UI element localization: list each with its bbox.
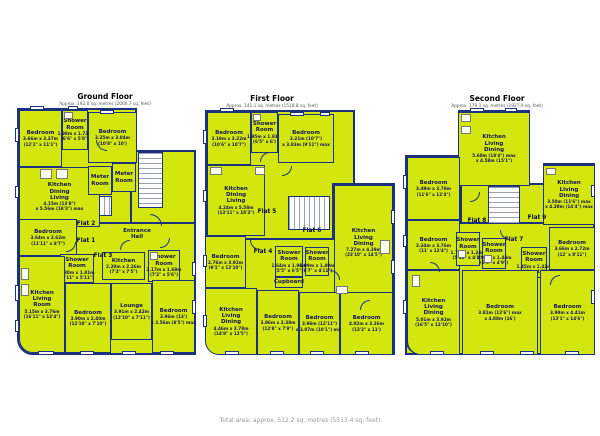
floor-subtitle-text: Approx. 141.1 sq. metres (1518.8 sq. fee… (192, 104, 352, 109)
window-mark (15, 285, 19, 301)
window-mark (403, 175, 407, 189)
stairs (288, 196, 330, 230)
floor-subtitle-text: Approx. 192.0 sq. metres (2066.7 sq. fee… (25, 102, 185, 107)
room-dimensions: (16'11" x 12'4") (24, 314, 61, 319)
flat-label: Flat 8 (468, 218, 487, 224)
room-dimensions: (5'5" x 6'5") (275, 268, 303, 273)
room-name: Kitchen Living Room (30, 290, 54, 309)
fixture-mark (484, 255, 492, 263)
room-lounge: Lounge3.91m x 2.42m(12'10" x 7'11") (111, 283, 152, 340)
room-name: Kitchen Living Dining (422, 298, 446, 317)
fixture-mark (461, 114, 471, 122)
room-name: Shower Room (253, 121, 276, 134)
room-dimensions: (9'1" x 12'10") (209, 265, 243, 270)
room-dimensions: (6'5" x 6') (253, 139, 276, 144)
room-name: Shower Room (63, 118, 86, 131)
window-mark (565, 351, 579, 355)
room-name: Kitchen Dining Living (48, 182, 72, 201)
window-mark (403, 300, 407, 314)
flat-label: Flat 4 (254, 249, 273, 255)
flat-label: Flat 9 (528, 215, 547, 221)
room-dimensions: (13'2" x 11') (352, 327, 381, 332)
window-mark (290, 112, 304, 116)
total-area-note: Total area: approx. 512.2 sq. metres (55… (0, 417, 600, 424)
room-bedroom: Bedroom3.49m x 3.78m(11'6" x 12'4") (407, 157, 460, 220)
room-name: Shower Room (305, 250, 328, 263)
room-name: Shower Room (65, 257, 88, 270)
window-mark (192, 300, 196, 314)
room-name: Kitchen Dining Living (224, 186, 248, 205)
room-meter-room: Meter Room (112, 163, 136, 192)
room-shower-room: Shower Room2.05m x 1.44m(6'9" x 4'9") (482, 238, 506, 269)
room-bedroom: Bedroom3.96m (12'11")x 3.07m (10'1") max (299, 292, 340, 355)
room-dimensions: x 4.38m (14'4") max (545, 204, 593, 209)
room-shower-room: Shower Room1.79m x 1.24m(5'10" x 4'1") (456, 232, 480, 266)
window-mark (391, 260, 395, 274)
room-name: Shower Room (522, 251, 545, 264)
window-mark (38, 351, 54, 355)
window-mark (225, 351, 239, 355)
window-mark (310, 351, 324, 355)
room-dimensions: (11'6" x 12'4") (417, 192, 451, 197)
room-name: Cupboard (274, 279, 304, 285)
fixture-mark (380, 240, 390, 254)
stairs (138, 152, 163, 208)
room-kitchen-living-dining: Kitchen Living Dining5.60m (18'4") maxx … (458, 112, 530, 186)
room-kitchen-dining-living: Kitchen Dining Living4.24m x 5.58m(13'11… (207, 165, 265, 236)
room-dimensions: (7'3" x 7'5") (109, 269, 137, 274)
room-dimensions: (5'11" x 5'11") (60, 275, 94, 280)
fixture-mark (412, 275, 420, 287)
window-mark (15, 320, 19, 332)
room-shower-room: Shower Room1.80m x 1.81m(5'11" x 5'11") (60, 254, 94, 283)
room-shower-room: Shower Room1.64m x 1.96m(5'5" x 6'5") (275, 246, 303, 277)
room-dimensions: (12'1" x 11'1") (24, 142, 58, 147)
room-name: Kitchen Living Dining (352, 228, 376, 247)
room-name: Entrance Hall (123, 228, 151, 241)
flat-label: Flat 2 (77, 221, 96, 227)
fixture-mark (21, 284, 29, 296)
room-name: Shower Room (482, 242, 505, 255)
window-mark (15, 186, 19, 198)
flat-label: Flat 3 (94, 253, 113, 259)
room-dimensions: (11' x 12'4") (419, 248, 448, 253)
room-dimensions: x 5.56m (18'3") max (36, 206, 84, 211)
room-dimensions: x 4.88m (16') (484, 316, 515, 321)
room-dimensions: (12'10" x 7'10") (70, 321, 107, 326)
room-dimensions: (13'1" x 14'6") (551, 316, 585, 321)
window-mark (203, 255, 207, 267)
room-cupboard: Cupboard (275, 277, 303, 288)
room-shower-room: Shower Room1.99m x 1.49m(6'7" x 4'11") (305, 247, 329, 276)
fixture-mark (458, 250, 466, 258)
floor-title-text: First Floor (192, 94, 352, 103)
flat-label: Flat 1 (77, 238, 96, 244)
room-dimensions: (12'10" x 7'11") (113, 315, 150, 320)
room-bedroom: Bedroom3.86m x 2.38m(12'8" x 7'9") (257, 290, 299, 355)
room-name: Shower Room (456, 237, 479, 250)
fixture-mark (336, 286, 348, 294)
room-dimensions: x 2.56m (8'5") max (151, 320, 196, 325)
room-name: Meter Room (115, 171, 133, 184)
window-mark (80, 351, 94, 355)
flat-label: Flat 5 (258, 209, 277, 215)
room-name: Meter Room (91, 174, 109, 187)
fixture-mark (461, 126, 471, 134)
room-bedroom: Bedroom3.90m x 2.40m(12'10" x 7'10") (65, 283, 111, 353)
room-name: Shower Room (277, 250, 300, 263)
room-dimensions: (14'8" x 12'5") (214, 331, 248, 336)
window-mark (391, 210, 395, 224)
floor-title: Second FloorApprox. 179.1 sq. metres (19… (417, 94, 577, 109)
room-bedroom: Bedroom3.25m x 3.04m(10'8" x 10') (88, 112, 137, 163)
window-mark (270, 351, 284, 355)
room-bedroom: Bedroom3.96m (13')x 2.56m (8'5") max (152, 280, 195, 353)
window-mark (320, 112, 330, 116)
floorplan-canvas: Total area: approx. 512.2 sq. metres (55… (0, 0, 600, 436)
floor-title: First FloorApprox. 141.1 sq. metres (151… (192, 94, 352, 109)
room-dimensions: (12'8" x 7'9") (263, 326, 294, 331)
window-mark (591, 185, 595, 197)
room-dimensions: (10'6" x 10'7") (212, 142, 246, 147)
fixture-mark (64, 112, 73, 119)
room-dimensions: (6'6" x 5'8") (61, 136, 89, 141)
room-dimensions: (12' x 8'11") (558, 252, 587, 257)
window-mark (403, 235, 407, 247)
window-mark (15, 128, 19, 142)
window-mark (192, 262, 196, 276)
window-mark (203, 315, 207, 327)
window-mark (160, 351, 174, 355)
window-mark (430, 351, 444, 355)
floor-title-text: Second Floor (417, 94, 577, 103)
fixture-mark (150, 252, 158, 260)
floor-title-text: Ground Floor (25, 92, 185, 101)
window-mark (100, 110, 114, 114)
fixture-mark (40, 169, 52, 179)
fixture-mark (56, 169, 68, 179)
window-mark (203, 190, 207, 202)
fixture-mark (21, 268, 29, 280)
room-dimensions: x 3.03m (9'11") max (282, 142, 330, 147)
room-meter-room: Meter Room (88, 166, 112, 195)
flat-label: Flat 7 (505, 237, 524, 243)
window-mark (520, 351, 534, 355)
room-bedroom: Bedroom3.99m x 4.41m(13'1" x 14'6") (540, 270, 595, 355)
window-mark (480, 351, 494, 355)
room-name: Kitchen Living Dining (557, 180, 581, 199)
fixture-mark (546, 168, 556, 175)
floor-title: Ground FloorApprox. 192.0 sq. metres (20… (25, 92, 185, 107)
fixture-mark (253, 114, 261, 121)
room-bedroom: Bedroom3.66m x 2.72m(12' x 8'11") (549, 227, 595, 270)
room-name: Kitchen Living Dining (219, 307, 243, 326)
room-kitchen-living-dining: Kitchen Living Dining4.46m x 3.78m(14'8"… (205, 288, 257, 355)
room-bedroom: Bedroom3.66m x 3.37m(12'1" x 11'1") (19, 110, 62, 167)
room-bedroom: Bedroom3.21m (10'7")x 3.03m (9'11") max (278, 114, 334, 163)
stairs (488, 186, 520, 224)
window-mark (355, 351, 369, 355)
window-mark (203, 130, 207, 144)
room-dimensions: (13'11" x 18'3") (218, 210, 255, 215)
room-bedroom: Bedroom3.19m x 3.22m(10'6" x 10'7") (207, 112, 251, 165)
window-mark (122, 351, 136, 355)
room-name: Kitchen Living Dining (482, 134, 506, 153)
room-dimensions: (23'10" x 14'5") (345, 252, 382, 257)
window-mark (591, 290, 595, 304)
floor-subtitle-text: Approx. 179.1 sq. metres (1927.9 sq. fee… (417, 104, 577, 109)
room-dimensions: (16'5" x 12'10") (415, 322, 452, 327)
room-bedroom: Bedroom2.76m x 3.92m(9'1" x 12'10") (205, 236, 246, 288)
flat-label: Flat 6 (303, 228, 322, 234)
room-dimensions: (11'11" x 8'7") (31, 241, 65, 246)
fixture-mark (255, 167, 265, 175)
fixture-mark (210, 167, 222, 175)
room-dimensions: (6'7" x 4'11") (302, 268, 333, 273)
room-bedroom: Bedroom3.81m (12'6") maxx 4.88m (16') (462, 270, 538, 355)
room-dimensions: x 4.58m (15'1") (476, 158, 512, 163)
room-dimensions: (7'2" x 5'6") (150, 272, 178, 277)
room-dimensions: x 3.07m (10'1") max (296, 327, 344, 332)
